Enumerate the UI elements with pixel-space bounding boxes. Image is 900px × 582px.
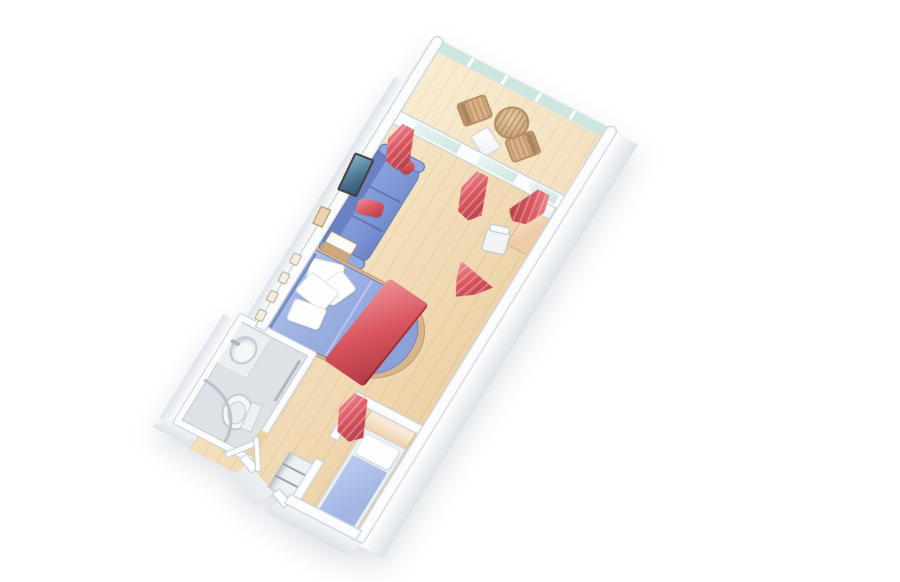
- stateroom-cutaway: [182, 43, 612, 542]
- floor-plan-canvas: [0, 0, 900, 582]
- shelf-line: [282, 463, 307, 477]
- shelf-line: [275, 475, 300, 489]
